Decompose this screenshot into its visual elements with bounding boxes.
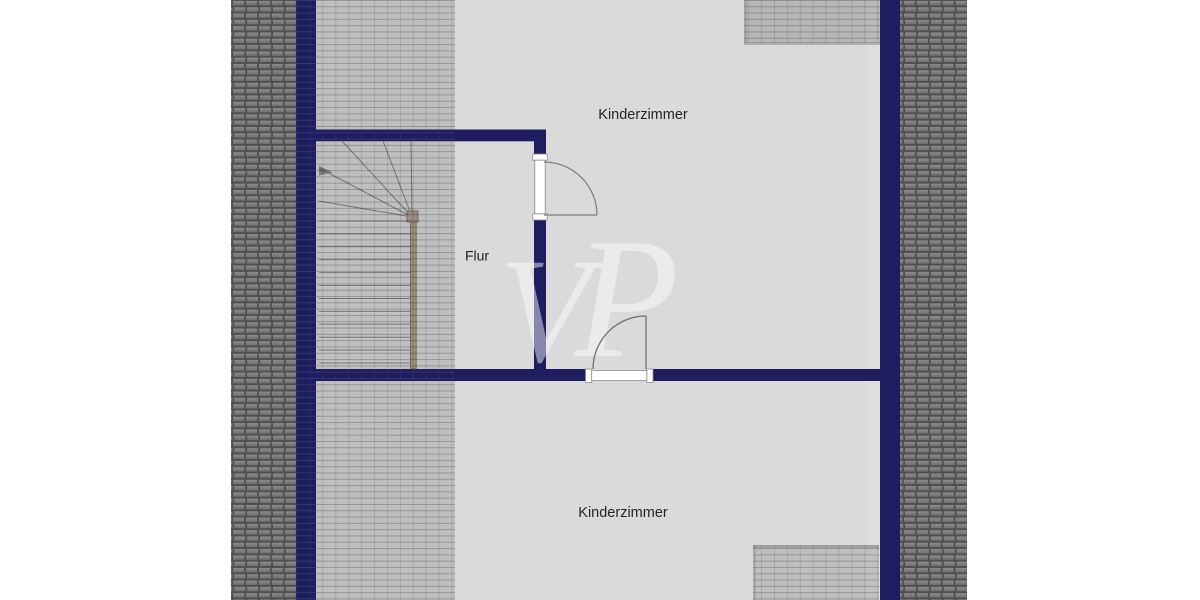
svg-text:Kinderzimmer: Kinderzimmer: [598, 107, 688, 123]
svg-text:Flur: Flur: [465, 248, 489, 264]
svg-text:P: P: [573, 204, 679, 394]
svg-text:Kinderzimmer: Kinderzimmer: [578, 505, 668, 521]
